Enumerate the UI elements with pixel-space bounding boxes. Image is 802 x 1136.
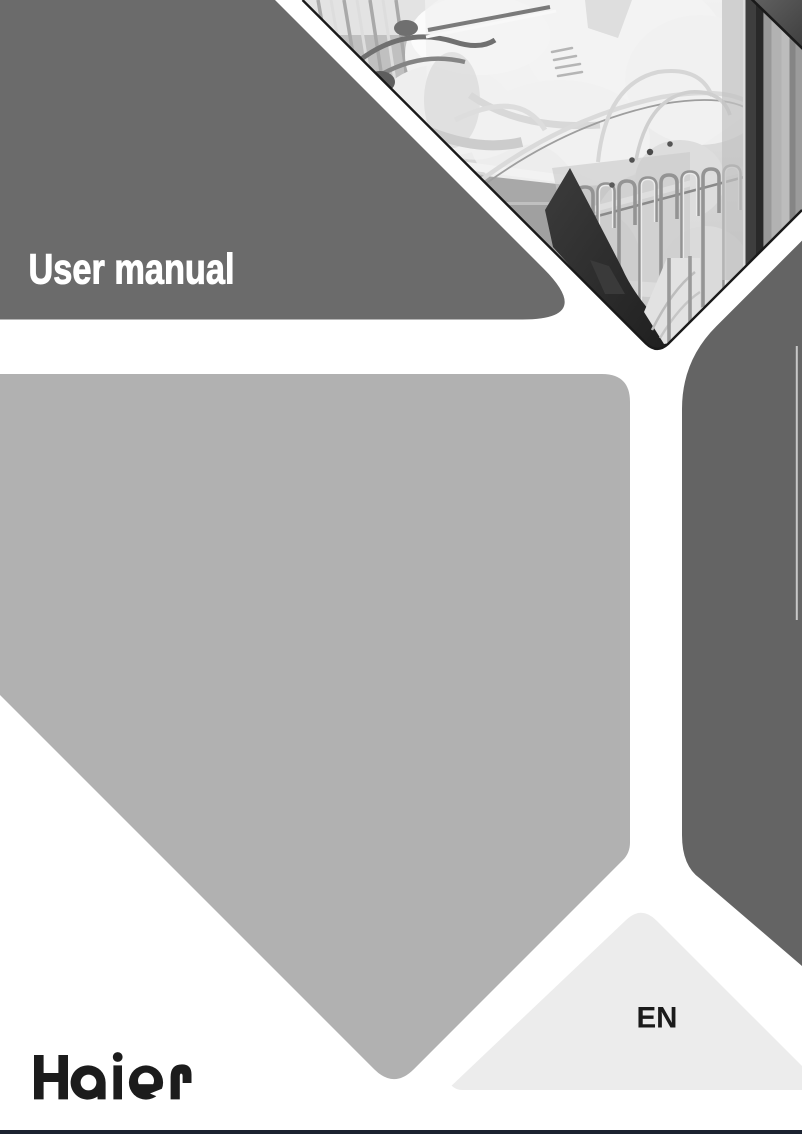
svg-text:User manual: User manual xyxy=(29,246,235,294)
svg-text:EN: EN xyxy=(637,1002,678,1035)
